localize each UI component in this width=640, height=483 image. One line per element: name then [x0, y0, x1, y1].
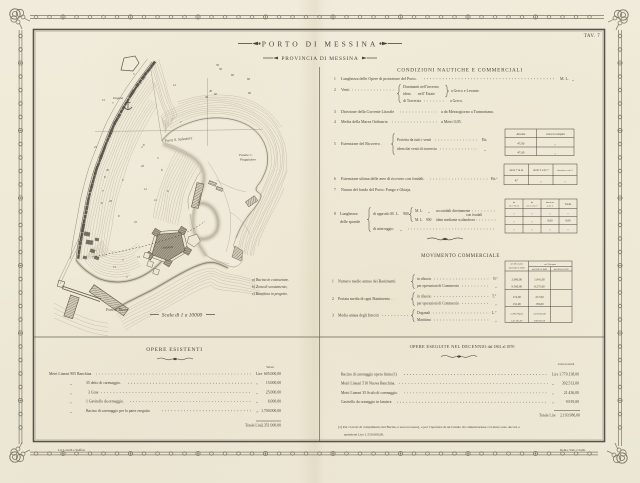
- svg-text:40: 40: [209, 89, 213, 93]
- svg-text:Lire: Lire: [256, 372, 263, 376]
- svg-text:„: „: [256, 381, 258, 386]
- svg-text:in rilascio: in rilascio: [417, 277, 431, 281]
- svg-text:5: 5: [133, 72, 135, 76]
- svg-text:605.000,00: 605.000,00: [264, 372, 281, 377]
- svg-text:12: 12: [173, 83, 177, 87]
- svg-text:dal 1841 al 1850: dal 1841 al 1850: [509, 266, 526, 269]
- svg-text:CONDIZIONI NAUTICHE E COMMERCI: CONDIZIONI NAUTICHE E COMMERCIALI: [397, 68, 523, 74]
- svg-text:15: 15: [137, 255, 141, 259]
- svg-text:a Greco e Levante.: a Greco e Levante.: [451, 89, 480, 93]
- svg-text:25: 25: [94, 145, 98, 149]
- svg-text:„: „: [552, 382, 554, 387]
- svg-text:dal 1847 al 1849: dal 1847 al 1849: [532, 269, 547, 271]
- svg-text:„: „: [495, 302, 497, 307]
- svg-text:47,00: 47,00: [517, 150, 525, 155]
- svg-text:47,00: 47,00: [517, 141, 525, 146]
- svg-text:12: 12: [144, 187, 148, 191]
- svg-text:inferiore a m/ 5: inferiore a m/ 5: [557, 169, 573, 172]
- svg-text:2: 2: [334, 88, 336, 92]
- svg-text:1: 1: [332, 280, 334, 284]
- svg-text:„: „: [549, 227, 551, 232]
- svg-text:a m/ 5: a m/ 5: [547, 204, 554, 207]
- svg-text:3: 3: [334, 110, 336, 114]
- svg-text:6: 6: [122, 178, 124, 182]
- svg-text:„: „: [572, 76, 574, 82]
- svg-text:PORTO DI MESSINA: PORTO DI MESSINA: [262, 40, 379, 49]
- svg-text:„: „: [428, 210, 430, 215]
- svg-text:7: 7: [334, 188, 336, 192]
- svg-text:6: 6: [334, 177, 336, 181]
- svg-text:108.025,00: 108.025,00: [534, 319, 546, 322]
- svg-text:Forte S. Blasio: Forte S. Blasio: [105, 308, 128, 312]
- svg-text:Gavitello da ormeggio in lamie: Gavitello da ormeggio in lamiera: [341, 400, 392, 404]
- svg-text:Totale: Totale: [565, 203, 572, 206]
- svg-text:25: 25: [134, 220, 138, 224]
- svg-text:„: „: [552, 391, 554, 396]
- svg-text:N.°: N.°: [493, 277, 498, 281]
- svg-text:„: „: [531, 227, 533, 232]
- svg-text:7: 7: [180, 120, 182, 124]
- svg-text:nel Decennio: nel Decennio: [510, 262, 523, 265]
- svg-text:6.000,00: 6.000,00: [268, 400, 281, 405]
- svg-text:„: „: [513, 219, 515, 224]
- svg-text:20: 20: [141, 164, 145, 168]
- svg-text:„: „: [70, 391, 72, 396]
- svg-text:21.436,00: 21.436,00: [564, 391, 579, 396]
- svg-text:nel Triennio: nel Triennio: [544, 263, 556, 266]
- svg-text:„: „: [256, 390, 258, 395]
- svg-text:47: 47: [515, 179, 519, 183]
- svg-text:20: 20: [109, 199, 113, 203]
- svg-text:Dominanti nell’inverno: Dominanti nell’inverno: [403, 85, 439, 89]
- svg-text:Lunghezza delle Opere di prote: Lunghezza delle Opere di protezione del …: [341, 76, 417, 81]
- svg-text:Totale Lire: Totale Lire: [539, 414, 556, 418]
- svg-text:Portata media di ogni Bastimen: Portata media di ogni Bastimento . .: [338, 297, 394, 301]
- svg-text:Lire: Lire: [552, 372, 559, 376]
- svg-text:2.351.000,00: 2.351.000,00: [261, 424, 281, 429]
- svg-text:Marittimi: Marittimi: [417, 318, 431, 322]
- svg-text:15: 15: [113, 265, 117, 269]
- svg-text:Metri Lineari 510 Nuova Banchi: Metri Lineari 510 Nuova Banchina.: [341, 382, 395, 386]
- svg-text:in rilascio: in rilascio: [417, 295, 431, 299]
- svg-text:Attuale: Attuale: [516, 132, 525, 136]
- svg-text:9.560,00: 9.560,00: [511, 285, 522, 290]
- svg-text:8: 8: [104, 175, 106, 179]
- svg-text:Numero medio annuo dei Bastime: Numero medio annuo dei Bastimenti: [338, 280, 395, 284]
- svg-text:147.105,00: 147.105,00: [511, 319, 523, 322]
- svg-text:2.080,00: 2.080,00: [511, 278, 522, 283]
- svg-text:60: 60: [248, 91, 252, 95]
- svg-text:T.°: T.°: [492, 295, 497, 299]
- svg-text:m/ 5 a m/ 7: m/ 5 a m/ 7: [527, 204, 539, 207]
- svg-text:8: 8: [161, 168, 163, 172]
- svg-text:Bacino di carenaggio per la pa: Bacino di carenaggio per la parte esegui…: [86, 409, 150, 413]
- svg-text:m/ 7 in su: m/ 7 in su: [509, 204, 520, 207]
- svg-text:30: 30: [219, 67, 223, 71]
- svg-text:12: 12: [154, 198, 158, 202]
- svg-text:spendersi Lire 1.550.000,00.: spendersi Lire 1.550.000,00.: [344, 433, 384, 438]
- svg-text:2.298.794,00: 2.298.794,00: [510, 313, 523, 316]
- svg-text:Piaggiatore: Piaggiatore: [239, 158, 257, 162]
- svg-text:da m/ 5 a m/ 7: da m/ 5 a m/ 7: [533, 169, 549, 172]
- svg-text:„: „: [549, 211, 551, 216]
- svg-text:1.941,00: 1.941,00: [534, 278, 545, 283]
- svg-text:„: „: [567, 227, 569, 232]
- svg-text:Ett.: Ett.: [482, 138, 487, 142]
- svg-text:„: „: [540, 179, 542, 184]
- svg-text:„: „: [484, 148, 486, 153]
- svg-text:1.770.138,00: 1.770.138,00: [559, 372, 579, 377]
- svg-text:M. L.: M. L.: [560, 76, 569, 81]
- svg-text:idem: idem: [403, 92, 411, 96]
- svg-text:25.000,00: 25.000,00: [266, 390, 281, 395]
- svg-text:a Greco.: a Greco.: [450, 99, 463, 103]
- svg-text:M. L.: M. L.: [415, 209, 423, 213]
- svg-text:„: „: [495, 319, 497, 324]
- svg-text:Estensione del Ricovero .: Estensione del Ricovero .: [341, 141, 382, 146]
- svg-text:60: 60: [214, 92, 218, 96]
- svg-text:Venti: Venti: [341, 87, 350, 92]
- svg-text:nell’ Estate: nell’ Estate: [418, 92, 435, 96]
- svg-text:4: 4: [334, 120, 336, 124]
- svg-text:L.°: L.°: [492, 311, 497, 315]
- svg-text:Estensione ultima delle aree d: Estensione ultima delle aree di ricovero…: [341, 176, 425, 181]
- svg-text:Totale Lire: Totale Lire: [245, 424, 262, 428]
- svg-text:30: 30: [106, 168, 110, 172]
- svg-text:di approdo M. L.: di approdo M. L.: [373, 212, 399, 216]
- svg-text:3: 3: [332, 314, 334, 318]
- svg-text:174,00: 174,00: [513, 295, 522, 300]
- svg-text:M. L.: M. L.: [415, 218, 423, 222]
- svg-text:30: 30: [205, 95, 209, 99]
- svg-text:MOVIMENTO COMMERCIALE: MOVIMENTO COMMERCIALE: [421, 254, 500, 259]
- svg-text:„: „: [513, 227, 515, 232]
- svg-text:2: 2: [332, 297, 334, 301]
- svg-text:5: 5: [157, 156, 159, 160]
- svg-text:„: „: [567, 211, 569, 216]
- svg-text:„.: „.: [256, 409, 259, 414]
- svg-text:„: „: [495, 285, 497, 290]
- svg-text:per operazioni di Commercio: per operazioni di Commercio: [417, 302, 459, 306]
- svg-text:Metri Lineari 35 Scalo di care: Metri Lineari 35 Scalo di carenaggio.: [341, 391, 398, 395]
- svg-text:35 detto di carenaggio.: 35 detto di carenaggio.: [86, 381, 121, 385]
- svg-text:15.000,00: 15.000,00: [266, 381, 281, 386]
- svg-text:1: 1: [334, 77, 336, 81]
- svg-text:„: „: [70, 409, 72, 414]
- svg-text:50: 50: [216, 63, 220, 67]
- svg-text:900: 900: [403, 212, 409, 216]
- svg-text:A lavori compiuti: A lavori compiuti: [546, 133, 565, 136]
- svg-text:900: 900: [426, 218, 432, 222]
- svg-text:OPERE ESISTENTI: OPERE ESISTENTI: [146, 347, 203, 353]
- svg-text:per operazioni di Commercio: per operazioni di Commercio: [417, 284, 459, 288]
- svg-text:60: 60: [231, 73, 235, 77]
- svg-text:b) Zona di scostamento,: b) Zona di scostamento,: [252, 285, 288, 290]
- svg-text:2.193.986,00: 2.193.986,00: [560, 414, 580, 419]
- svg-text:„: „: [555, 151, 557, 156]
- svg-text:1.700.000,00: 1.700.000,00: [261, 409, 281, 414]
- svg-text:1 Gavitello da ormeggio.: 1 Gavitello da ormeggio.: [86, 400, 124, 404]
- svg-text:a da Mezzogiorno a Tramontana.: a da Mezzogiorno a Tramontana.: [441, 109, 494, 114]
- svg-text:8.275,00: 8.275,00: [534, 285, 545, 290]
- svg-text:„: „: [70, 400, 72, 405]
- svg-text:„: „: [552, 400, 554, 405]
- svg-text:3.293.025,00: 3.293.025,00: [533, 313, 546, 316]
- svg-text:idem dai venti di traversia: idem dai venti di traversia: [397, 147, 437, 151]
- svg-text:c) Banchina in progetto.: c) Banchina in progetto.: [252, 292, 288, 296]
- svg-text:(1) Per i lavori di compimento: (1) Per i lavori di compimento del Bacin…: [338, 425, 520, 430]
- svg-text:TAV. 7: TAV. 7: [584, 34, 601, 39]
- svg-text:Metri Lineari 905 Banchina: Metri Lineari 905 Banchina: [49, 372, 92, 376]
- svg-text:„: „: [70, 382, 72, 387]
- svg-text:„: „: [531, 211, 533, 216]
- svg-text:8: 8: [334, 212, 336, 216]
- svg-text:Media annua degli Introiti: Media annua degli Introiti: [338, 314, 379, 318]
- svg-text:dal 1850 al 1852: dal 1850 al 1852: [554, 269, 569, 271]
- svg-text:con fondali: con fondali: [466, 213, 482, 217]
- svg-text:a) Bacino in costruzione.: a) Bacino in costruzione.: [252, 278, 289, 282]
- svg-text:„: „: [256, 400, 258, 405]
- svg-text:a Metri 0,05.: a Metri 0,05.: [441, 119, 462, 125]
- svg-text:7: 7: [112, 101, 114, 105]
- svg-text:15: 15: [102, 98, 106, 102]
- svg-text:Costi accertati: Costi accertati: [558, 362, 575, 366]
- svg-text:Lit. Lavelli e Steffen.: Lit. Lavelli e Steffen.: [58, 448, 85, 452]
- svg-text:8: 8: [143, 143, 145, 147]
- svg-text:217,00: 217,00: [535, 295, 544, 300]
- svg-text:„: „: [400, 228, 402, 233]
- svg-text:„: „: [513, 211, 515, 216]
- svg-text:9.919,00: 9.919,00: [566, 400, 579, 405]
- svg-text:Doganali: Doganali: [417, 311, 430, 315]
- svg-text:„: „: [531, 219, 533, 224]
- svg-text:Direzione della Corrente Litor: Direzione della Corrente Litorale: [341, 109, 394, 114]
- svg-text:Bacino di carenaggio opera fin: Bacino di carenaggio opera finita (1): [341, 372, 398, 376]
- svg-text:Valore: Valore: [266, 365, 274, 369]
- svg-text:OPERE ESEGUITE NEL DECENNIO da: OPERE ESEGUITE NEL DECENNIO dal 1861 al …: [410, 344, 515, 349]
- svg-text:Fanale C.: Fanale C.: [238, 153, 253, 157]
- svg-text:delle sponde: delle sponde: [340, 219, 360, 224]
- svg-text:Lunghezza: Lunghezza: [340, 211, 358, 216]
- svg-text:3 Grue: 3 Grue: [88, 390, 99, 394]
- svg-text:8: 8: [118, 214, 120, 218]
- svg-text:Dogana: Dogana: [112, 96, 124, 100]
- svg-text:Ett.¹: Ett.¹: [491, 177, 498, 181]
- svg-text:da m/ 7 in su: da m/ 7 in su: [509, 169, 524, 172]
- svg-text:di atterraggio: di atterraggio: [373, 227, 393, 231]
- svg-text:PROVINCIA DI MESSINA: PROVINCIA DI MESSINA: [281, 56, 358, 62]
- svg-text:9,00: 9,00: [565, 219, 571, 224]
- svg-text:5: 5: [334, 142, 336, 146]
- svg-text:di Traversia: di Traversia: [403, 99, 421, 103]
- svg-text:5: 5: [126, 275, 128, 279]
- svg-text:9,00: 9,00: [547, 219, 553, 224]
- svg-text:Natura del fondo del Porto: Fa: Natura del fondo del Porto: Fango e Ghia…: [341, 187, 411, 192]
- svg-text:Protetta da tutti i venti: Protetta da tutti i venti: [397, 138, 431, 142]
- svg-text:6: 6: [140, 81, 142, 85]
- svg-text:60: 60: [247, 77, 251, 81]
- svg-text:Media della Marea Ordinaria: Media della Marea Ordinaria: [341, 119, 388, 124]
- svg-text:Scala di 1 a 10000: Scala di 1 a 10000: [162, 313, 203, 319]
- svg-text:„: „: [564, 179, 566, 184]
- svg-text:„: „: [555, 142, 557, 147]
- svg-text:idem mediante scalandroni: idem mediante scalandroni: [436, 218, 475, 222]
- svg-text:392.513,00: 392.513,00: [562, 382, 579, 387]
